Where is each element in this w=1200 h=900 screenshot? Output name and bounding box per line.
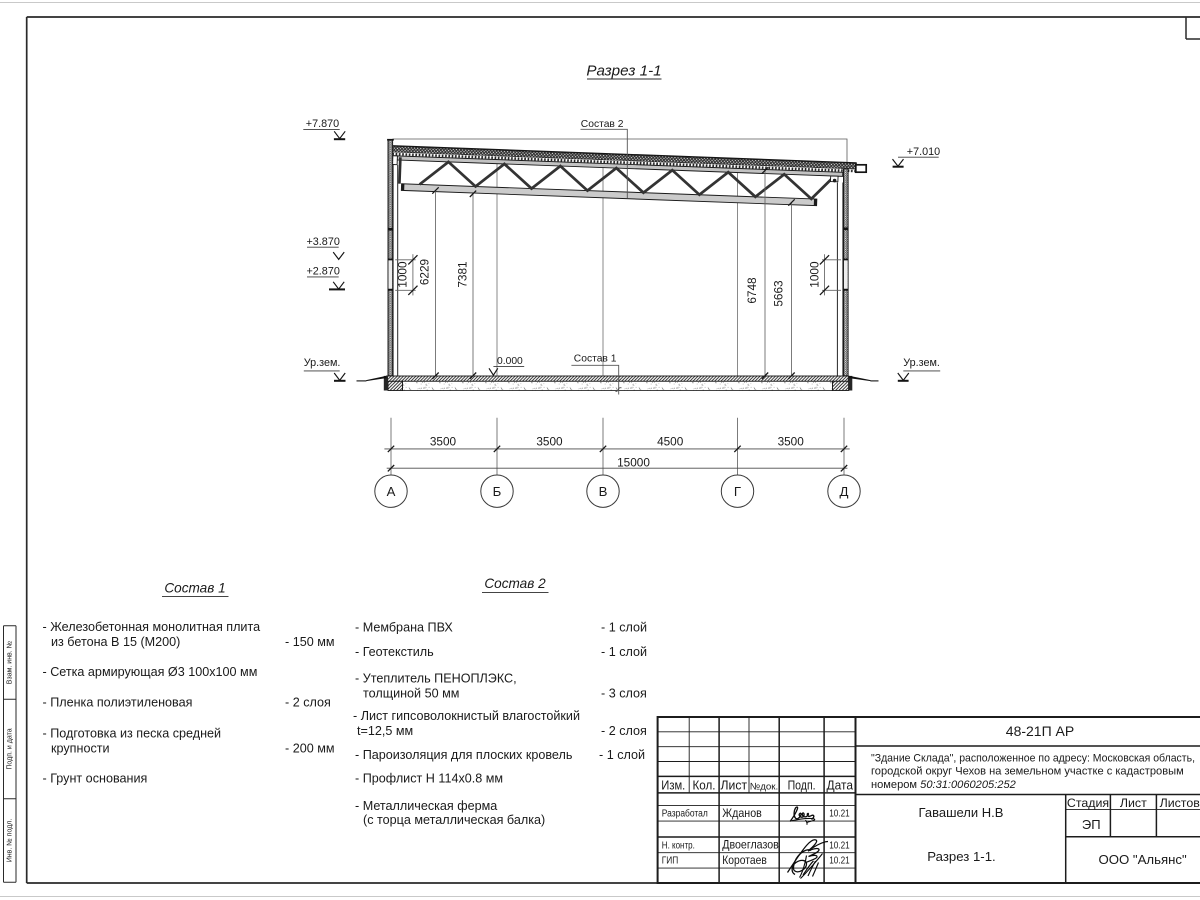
svg-text:номером 50:31:0060205:252: номером 50:31:0060205:252: [871, 779, 1016, 791]
svg-text:Дата: Дата: [827, 777, 854, 792]
svg-text:Двоеглазов: Двоеглазов: [722, 838, 779, 852]
svg-text:- Подготовка из песка средней: - Подготовка из песка средней: [43, 727, 222, 741]
svg-text:Разрез 1-1.: Разрез 1-1.: [927, 849, 995, 864]
svg-text:7381: 7381: [456, 261, 470, 287]
svg-text:3500: 3500: [778, 434, 805, 448]
svg-text:Г: Г: [734, 484, 741, 499]
svg-text:- Лист гипсоволокнистый влагос: - Лист гипсоволокнистый влагостойкий: [353, 709, 580, 723]
svg-text:+2.870: +2.870: [307, 266, 340, 278]
svg-text:Состав 1: Состав 1: [574, 353, 617, 364]
svg-text:+7.010: +7.010: [907, 146, 940, 158]
svg-text:Н. контр.: Н. контр.: [662, 840, 695, 851]
svg-text:из бетона В 15 (М200): из бетона В 15 (М200): [51, 635, 180, 649]
svg-text:- Пленка полиэтиленовая: - Пленка полиэтиленовая: [43, 696, 193, 710]
svg-text:- Железобетонная монолитная п: - Железобетонная монолитная плита: [43, 620, 261, 634]
svg-text:Гавашели Н.В: Гавашели Н.В: [919, 805, 1004, 820]
svg-text:Ур.зем.: Ур.зем.: [903, 357, 940, 369]
svg-text:0.000: 0.000: [497, 356, 523, 367]
svg-text:ООО "Альянс": ООО "Альянс": [1099, 852, 1187, 867]
svg-text:Состав 1: Состав 1: [164, 581, 225, 596]
svg-text:- Грунт основания: - Грунт основания: [43, 771, 148, 785]
svg-text:Коротаев: Коротаев: [722, 853, 767, 867]
svg-text:Лист: Лист: [721, 777, 748, 792]
svg-text:Состав 2: Состав 2: [484, 576, 546, 591]
svg-text:городской округ Чехов на земел: городской округ Чехов на земельном участ…: [871, 766, 1184, 778]
svg-text:ГИП: ГИП: [662, 856, 679, 867]
svg-text:- 1 слой: - 1 слой: [601, 621, 647, 635]
svg-text:Листов: Листов: [1160, 796, 1200, 810]
svg-text:Инв. № подл.: Инв. № подл.: [6, 819, 13, 863]
svg-text:- 3 слоя: - 3 слоя: [601, 686, 647, 700]
svg-text:Разрез 1-1: Разрез 1-1: [586, 63, 661, 80]
svg-text:t=12,5 мм: t=12,5 мм: [357, 724, 413, 738]
svg-text:- Мембрана ПВХ: - Мембрана ПВХ: [355, 621, 453, 635]
svg-text:1000: 1000: [807, 261, 821, 288]
svg-text:(с торца металлическая балка): (с торца металлическая балка): [363, 813, 545, 827]
svg-text:10.21: 10.21: [829, 856, 850, 867]
svg-text:А: А: [387, 484, 396, 499]
svg-text:- Геотекстиль: - Геотекстиль: [355, 645, 434, 659]
svg-text:- 1 слой: - 1 слой: [599, 748, 645, 762]
svg-text:- Утеплитель ПЕНОПЛЭКС,: - Утеплитель ПЕНОПЛЭКС,: [355, 671, 517, 685]
svg-text:4500: 4500: [657, 434, 684, 448]
svg-text:Разработал: Разработал: [662, 808, 708, 820]
svg-text:Лист: Лист: [1120, 796, 1147, 810]
svg-text:Кол.: Кол.: [693, 777, 716, 792]
svg-text:- 2 слоя: - 2 слоя: [601, 724, 647, 738]
svg-text:крупности: крупности: [51, 742, 110, 756]
svg-text:Д: Д: [840, 484, 849, 499]
svg-text:Состав 2: Состав 2: [581, 119, 624, 130]
svg-text:- 2 слоя: - 2 слоя: [285, 696, 331, 710]
svg-text:Стадия: Стадия: [1067, 796, 1109, 810]
svg-text:- Металлическая ферма: - Металлическая ферма: [355, 799, 497, 813]
svg-text:5663: 5663: [772, 280, 786, 307]
svg-text:+3.870: +3.870: [307, 236, 340, 248]
svg-text:Б: Б: [493, 484, 502, 499]
svg-text:В: В: [599, 484, 608, 499]
svg-text:Подп. и дата: Подп. и дата: [6, 728, 13, 769]
svg-text:+7.870: +7.870: [306, 118, 339, 130]
svg-text:- 1 слой: - 1 слой: [601, 645, 647, 659]
svg-text:"Здание Склада", расположенное: "Здание Склада", расположенное по адресу…: [871, 752, 1195, 764]
svg-text:№док.: №док.: [750, 781, 779, 792]
svg-text:6229: 6229: [418, 259, 432, 285]
svg-text:10.21: 10.21: [829, 840, 850, 851]
svg-text:Жданов: Жданов: [722, 806, 762, 820]
svg-text:Подп.: Подп.: [788, 777, 816, 792]
svg-text:3500: 3500: [536, 434, 563, 448]
svg-text:Взам. инв. №: Взам. инв. №: [6, 641, 13, 684]
svg-text:1000: 1000: [395, 261, 409, 288]
svg-text:ЭП: ЭП: [1082, 817, 1101, 832]
svg-text:- 150 мм: - 150 мм: [285, 635, 335, 649]
svg-text:3500: 3500: [430, 434, 457, 448]
svg-text:- Сетка армирующая Ø3 100х100: - Сетка армирующая Ø3 100х100 мм: [43, 665, 258, 679]
svg-text:- 200 мм: - 200 мм: [285, 742, 335, 756]
svg-text:- Пароизоляция для плоских кро: - Пароизоляция для плоских кровель: [355, 748, 573, 762]
svg-text:6748: 6748: [745, 277, 759, 304]
svg-text:10.21: 10.21: [829, 809, 850, 820]
svg-text:Ур.зем.: Ур.зем.: [304, 357, 341, 369]
svg-text:48-21П АР: 48-21П АР: [1006, 723, 1074, 739]
svg-text:15000: 15000: [617, 456, 650, 470]
svg-text:Изм.: Изм.: [661, 777, 685, 792]
svg-text:толщиной 50 мм: толщиной 50 мм: [363, 686, 459, 700]
svg-text:- Профлист Н 114х0.8 мм: - Профлист Н 114х0.8 мм: [355, 772, 503, 786]
